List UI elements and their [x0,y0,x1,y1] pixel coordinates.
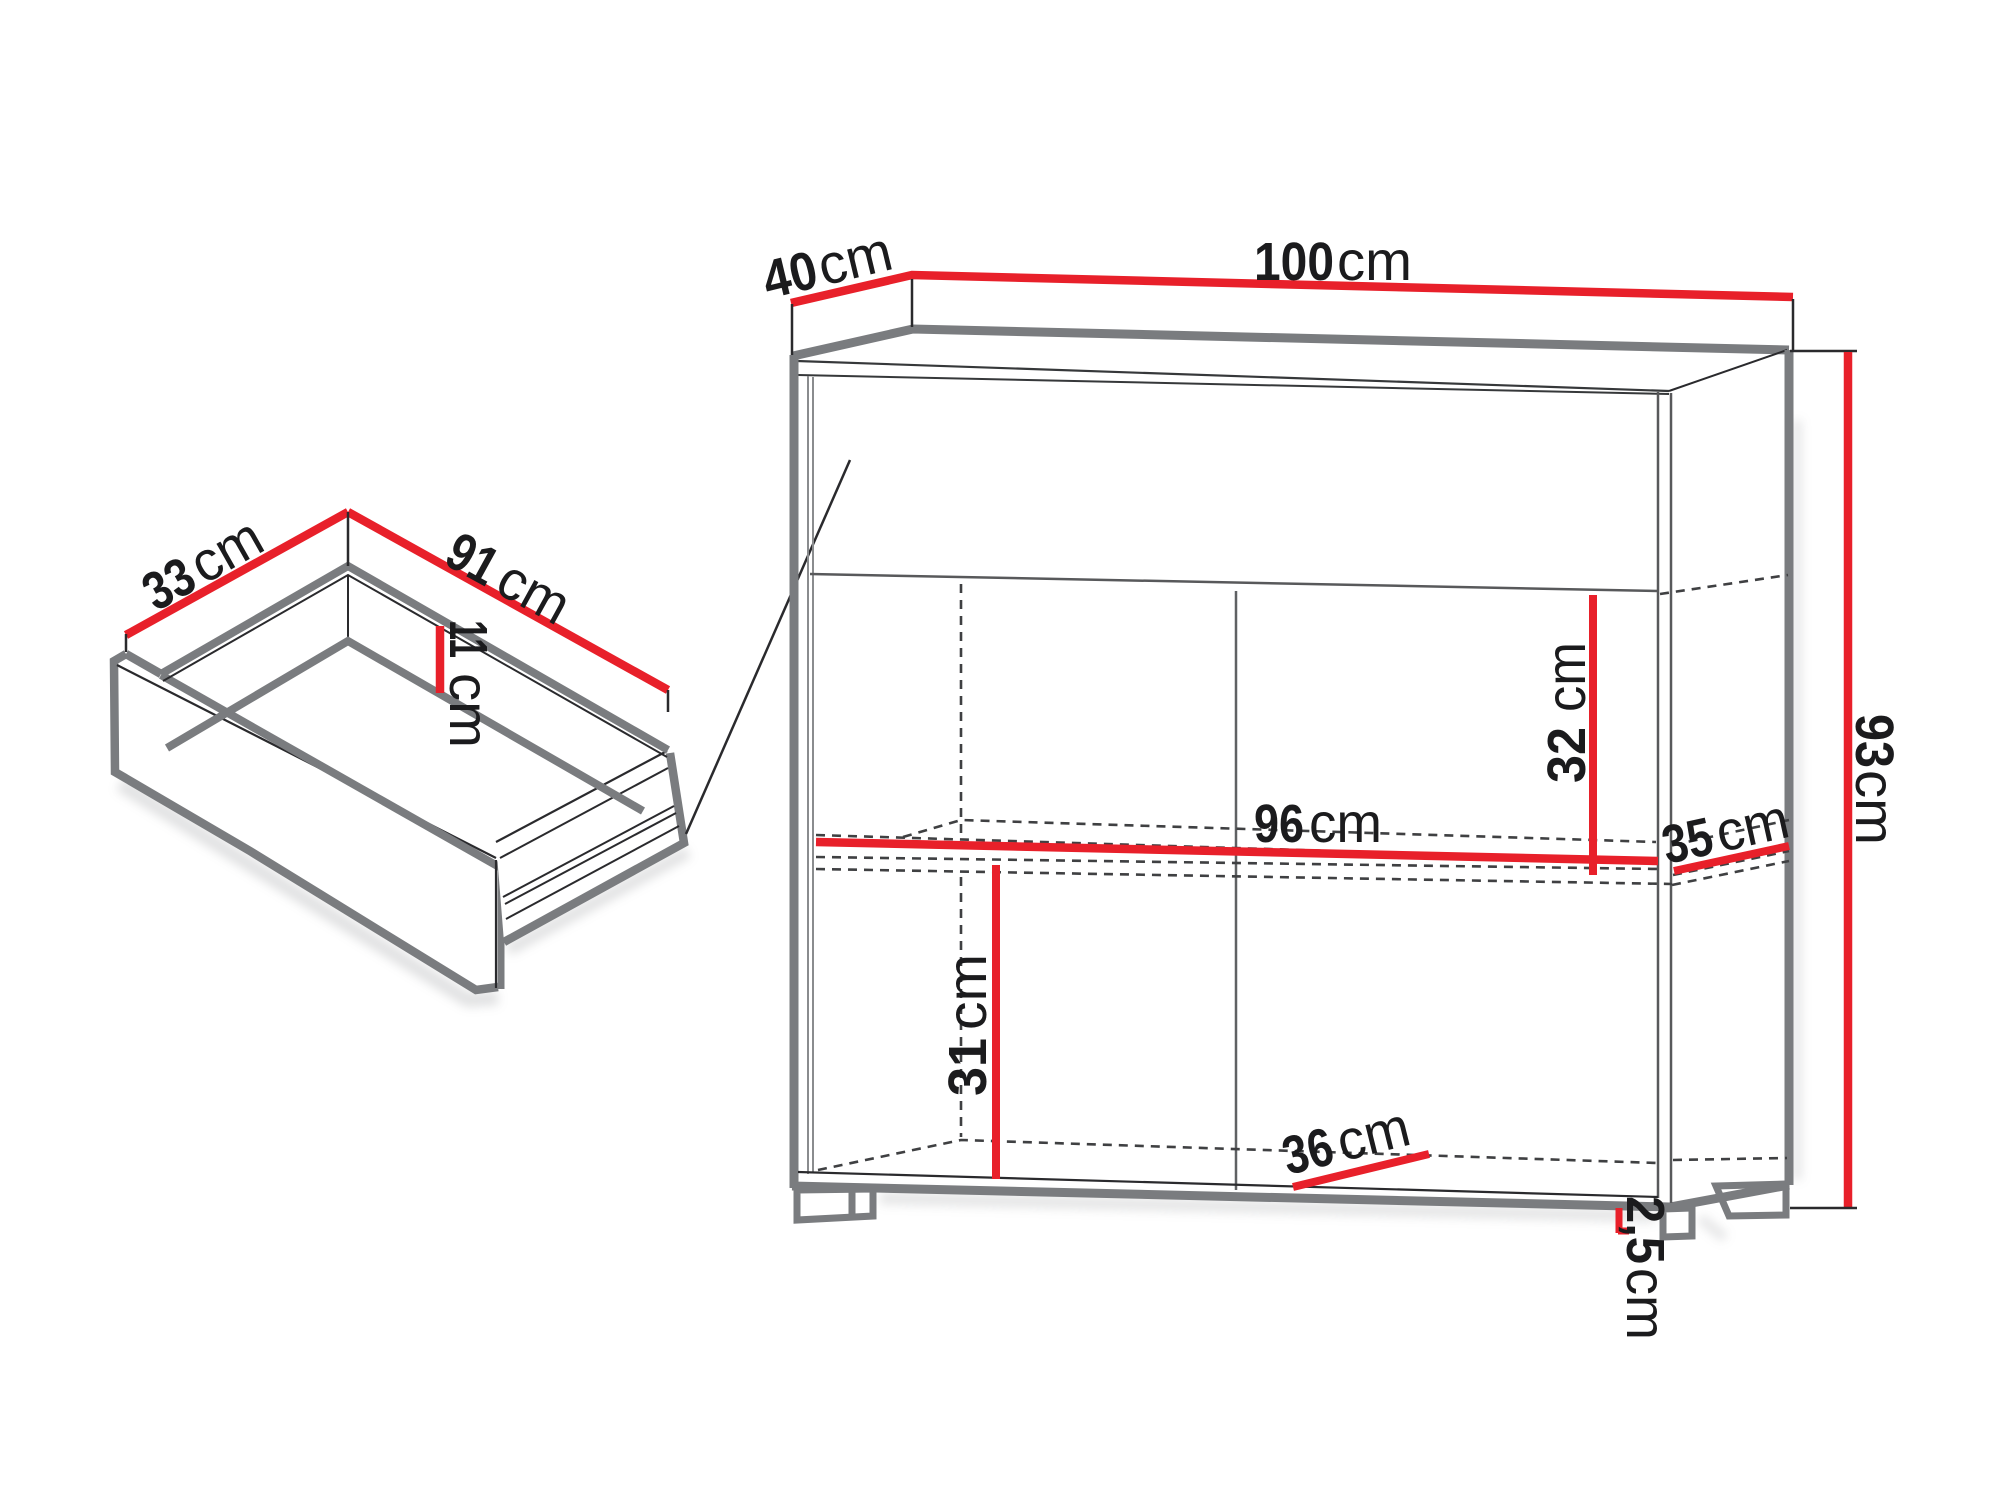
svg-text:cm: cm [1710,787,1795,864]
svg-text:36: 36 [1276,1116,1339,1186]
svg-text:cm: cm [1337,229,1412,292]
svg-text:cm: cm [1615,1268,1678,1340]
svg-text:96: 96 [1254,794,1304,854]
svg-text:cm: cm [1844,770,1907,845]
svg-text:31: 31 [938,1038,998,1096]
svg-text:cm: cm [812,219,899,298]
svg-text:2,5: 2,5 [1615,1196,1675,1264]
svg-text:32: 32 [1537,727,1597,783]
svg-text:93: 93 [1844,714,1904,768]
svg-text:cm: cm [438,673,501,748]
svg-text:cm: cm [487,546,581,636]
svg-text:35: 35 [1657,806,1719,875]
svg-text:cm: cm [1309,791,1382,854]
svg-text:100: 100 [1254,232,1334,292]
svg-text:11: 11 [438,620,498,658]
svg-text:cm: cm [1534,642,1597,712]
svg-text:cm: cm [935,954,998,1030]
svg-text:40: 40 [757,240,824,311]
